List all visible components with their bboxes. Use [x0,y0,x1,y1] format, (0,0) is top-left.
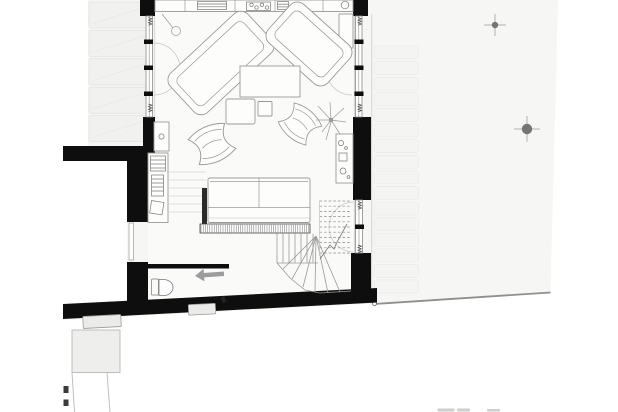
footer-marks [438,409,501,412]
west-paving-bands [89,2,150,142]
west-step [83,315,122,329]
floor-plan-drawing [0,0,618,412]
wall-bathroom [145,264,229,269]
wall-east-lower [351,253,371,291]
large-sofa [208,178,310,223]
balustrade-stub [202,188,207,229]
annex-building [64,330,121,412]
floor-plan-canvas [0,0,618,412]
kitchen-counter [155,0,353,12]
wall-west-garden [63,146,155,161]
wall-west-lower [143,117,155,151]
wall-east-middle [353,117,371,200]
upper-cabinet [154,122,169,151]
coffee-table [240,66,300,97]
southwest-exterior [63,161,127,304]
parapet-hatched-strip [200,224,310,233]
wall-southwest-upper [127,161,148,222]
entrance-step [188,303,216,315]
side-table [226,99,255,124]
wall-northwest-corner [140,0,155,16]
west-door-leaf [129,223,134,260]
wall-northeast-corner [353,0,368,16]
small-table [258,102,272,117]
desk [336,134,353,183]
